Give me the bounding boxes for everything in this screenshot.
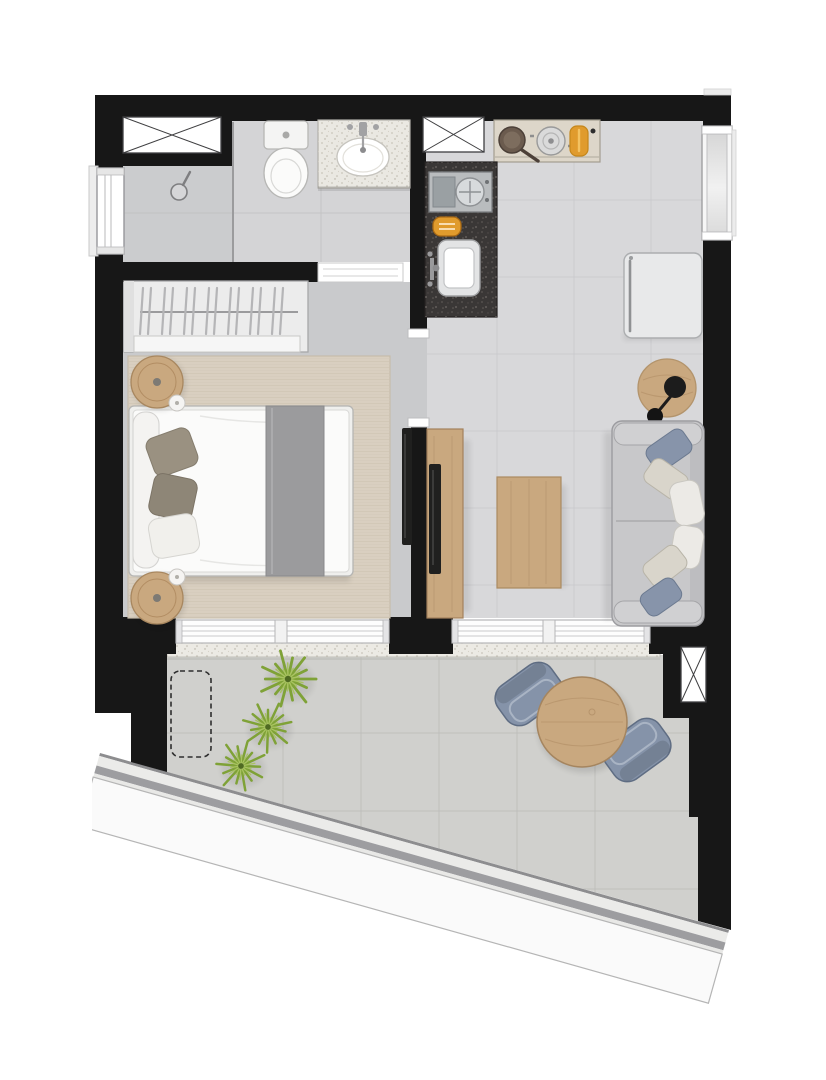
basin-faucet-body (359, 122, 367, 136)
toilet-bowl (264, 148, 308, 198)
nightstand-top-dot (153, 378, 161, 386)
bed-runner (266, 406, 324, 576)
bedroom-door-jamb-bottom (408, 418, 429, 427)
nightstand-bottom-dot (153, 594, 161, 602)
right-niche-cap-bottom (702, 232, 732, 240)
left-window-cap-top (97, 168, 124, 175)
bedroom-door-opening (411, 336, 427, 420)
pot-lid-knob (548, 138, 554, 144)
counter-knob-dot (591, 129, 596, 134)
right-niche-top-sliver (704, 89, 731, 95)
kitchen-faucet-handle-1 (427, 251, 432, 256)
washbasin-counter-shadow (318, 186, 410, 191)
toaster-icon (433, 217, 461, 236)
oven-knob-1 (485, 180, 489, 184)
left-window-cap-bottom (97, 247, 124, 254)
right-niche-ext-sliver (732, 130, 736, 236)
bedroom-door-jamb-top (408, 329, 429, 338)
sofa (604, 421, 706, 626)
nightstand-bottom-vase-dot (175, 575, 179, 579)
kitchen-faucet-head (433, 265, 440, 272)
shower-head-icon (171, 184, 187, 200)
oven-knob-2 (485, 198, 489, 202)
wardrobe-left-panel (124, 281, 134, 352)
floor-plan (0, 0, 826, 1080)
wall-bath-bedroom (95, 262, 318, 282)
bed-pillow-white (147, 512, 201, 560)
refrigerator-hinge-dot (629, 256, 633, 260)
floor-lamp-shade-icon (664, 376, 686, 398)
bathroom-door-threshold (318, 263, 403, 282)
wall-partition-lower (411, 419, 427, 618)
nightstand-top-vase-dot (175, 401, 179, 405)
right-niche-cap-top (702, 126, 732, 134)
living-tv-panel (429, 464, 441, 574)
basin-faucet-tip (360, 147, 366, 153)
wardrobe-shelf (134, 336, 300, 352)
frying-pan-inner (504, 132, 521, 149)
basin-handle-left (347, 124, 353, 130)
refrigerator (624, 253, 702, 338)
bedroom-wall-tv (402, 428, 412, 545)
sliding-door-bedroom-cap-right (383, 620, 389, 643)
sliding-door-bedroom-divider (275, 620, 287, 643)
wall-bottom-mid-strip (389, 617, 453, 654)
toilet-flush-button (283, 132, 290, 139)
kitchen-sink-basin (444, 248, 474, 288)
basin-handle-right (373, 124, 379, 130)
sliding-door-living-divider (543, 620, 555, 643)
sliding-door-bedroom-cap-left (176, 620, 182, 643)
right-niche-glass (707, 134, 727, 232)
oven-door-panel (433, 177, 455, 207)
kitchen-faucet-handle-2 (427, 281, 432, 286)
sliding-door-living-cap-left (452, 620, 458, 643)
